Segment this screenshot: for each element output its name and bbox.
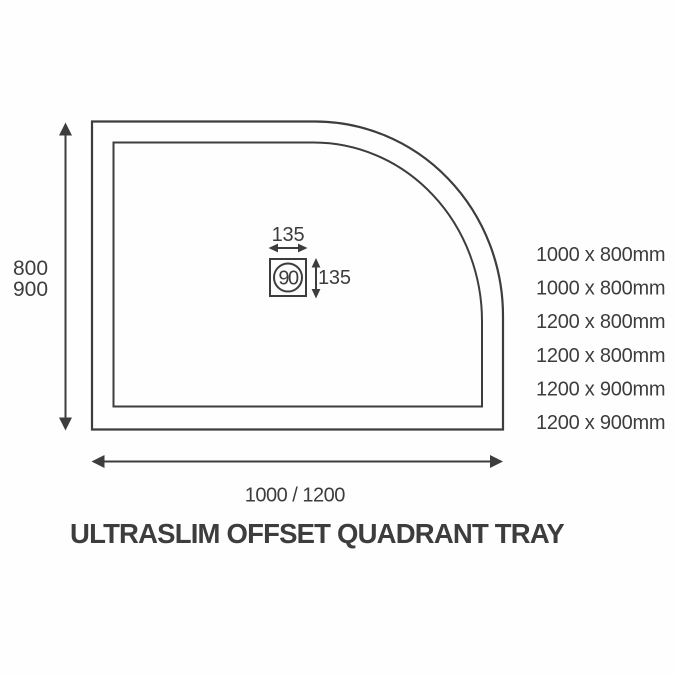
svg-text:ULTRASLIM OFFSET QUADRANT TRAY: ULTRASLIM OFFSET QUADRANT TRAY [70, 518, 564, 549]
svg-text:135: 135 [272, 224, 305, 246]
svg-text:1000 x 800mm: 1000 x 800mm [536, 244, 665, 266]
svg-text:135: 135 [318, 267, 351, 289]
svg-text:90: 90 [278, 268, 299, 290]
svg-text:800: 800 [13, 257, 48, 280]
svg-text:1200 x 900mm: 1200 x 900mm [536, 412, 665, 434]
svg-text:1200 x 900mm: 1200 x 900mm [536, 378, 665, 400]
svg-text:1200 x 800mm: 1200 x 800mm [536, 311, 665, 333]
svg-text:1200 x 800mm: 1200 x 800mm [536, 345, 665, 367]
svg-text:1000 x 800mm: 1000 x 800mm [536, 278, 665, 300]
svg-text:1000 / 1200: 1000 / 1200 [245, 485, 346, 507]
svg-text:900: 900 [13, 278, 48, 301]
